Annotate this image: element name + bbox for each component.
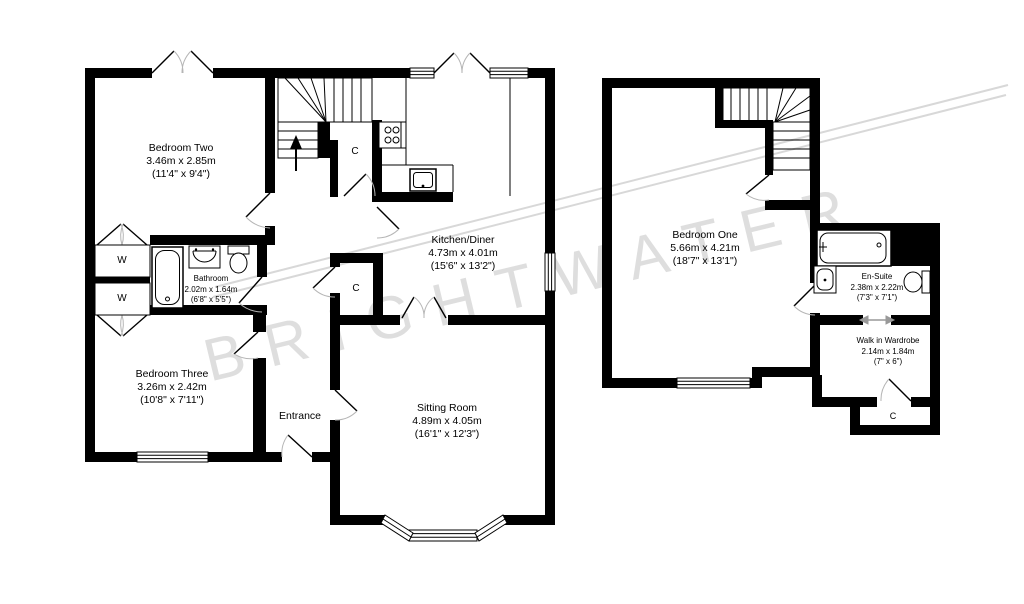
room-label-bathroom: Bathroom 2.02m x 1.64m (6'8" x 5'5") (166, 274, 256, 306)
floorplan-canvas: BRIGHTWATER (0, 0, 1024, 604)
room-dims-imperial: (11'4" x 9'4") (101, 168, 261, 181)
sliding-door-arrow-icon (860, 316, 894, 324)
room-name: Bedroom One (625, 229, 785, 242)
room-label-bedroom-one: Bedroom One 5.66m x 4.21m (18'7" x 13'1"… (625, 229, 785, 268)
room-name: Kitchen/Diner (383, 234, 543, 247)
bathroom-sink-icon (189, 246, 220, 268)
closet-label-understairs: C (335, 146, 375, 158)
room-label-bedroom-two: Bedroom Two 3.46m x 2.85m (11'4" x 9'4") (101, 142, 261, 181)
room-name: En-Suite (817, 272, 937, 283)
kitchen-sink-icon (410, 169, 436, 191)
room-name: Bedroom Three (92, 368, 252, 381)
room-dims-metric: 4.89m x 4.05m (367, 415, 527, 428)
wardrobe-label-top: W (102, 255, 142, 267)
room-label-walk-in-wardrobe: Walk in Wardrobe 2.14m x 1.84m (7" x 6") (818, 336, 958, 368)
closet-label-first-floor: C (873, 410, 913, 422)
room-name: Sitting Room (367, 402, 527, 415)
room-dims-imperial: (6'8" x 5'5") (166, 295, 256, 306)
room-dims-imperial: (7'3" x 7'1") (817, 293, 937, 304)
room-dims-imperial: (18'7" x 13'1") (625, 255, 785, 268)
wardrobe-label-bottom: W (102, 293, 142, 305)
room-dims-metric: 3.46m x 2.85m (101, 155, 261, 168)
room-dims-imperial: (7" x 6") (818, 357, 958, 368)
room-dims-metric: 2.02m x 1.64m (166, 285, 256, 296)
room-dims-metric: 5.66m x 4.21m (625, 242, 785, 255)
room-dims-metric: 2.14m x 1.84m (818, 347, 958, 358)
room-dims-imperial: (15'6" x 13'2") (383, 260, 543, 273)
room-dims-metric: 3.26m x 2.42m (92, 381, 252, 394)
room-dims-metric: 4.73m x 4.01m (383, 247, 543, 260)
room-label-en-suite: En-Suite 2.38m x 2.22m (7'3" x 7'1") (817, 272, 937, 304)
room-label-entrance: Entrance (260, 410, 340, 423)
toilet-icon (228, 246, 249, 273)
room-name: Entrance (260, 410, 340, 423)
room-label-sitting-room: Sitting Room 4.89m x 4.05m (16'1" x 12'3… (367, 402, 527, 441)
closet-label-hall: C (336, 283, 376, 295)
room-name: Bedroom Two (101, 142, 261, 155)
room-label-kitchen-diner: Kitchen/Diner 4.73m x 4.01m (15'6" x 13'… (383, 234, 543, 273)
room-name: Bathroom (166, 274, 256, 285)
room-name: Walk in Wardrobe (818, 336, 958, 347)
room-dims-imperial: (16'1" x 12'3") (367, 428, 527, 441)
room-label-bedroom-three: Bedroom Three 3.26m x 2.42m (10'8" x 7'1… (92, 368, 252, 407)
hob-icon (379, 122, 406, 148)
ensuite-bath-icon (817, 230, 891, 266)
room-dims-imperial: (10'8" x 7'11") (92, 394, 252, 407)
room-dims-metric: 2.38m x 2.22m (817, 283, 937, 294)
